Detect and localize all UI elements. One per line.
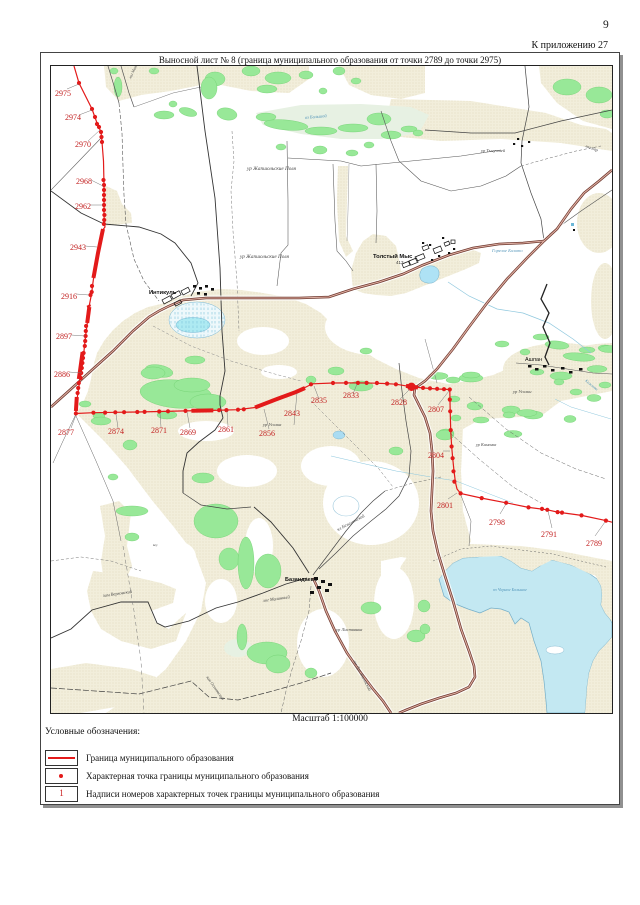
svg-text:2798: 2798 xyxy=(489,518,505,527)
svg-text:key: key xyxy=(153,543,158,547)
svg-text:ур Листвянка: ур Листвянка xyxy=(335,627,363,632)
svg-text:2843: 2843 xyxy=(284,409,300,418)
svg-text:2801: 2801 xyxy=(437,501,453,510)
svg-text:2897: 2897 xyxy=(56,332,72,341)
svg-text:2871: 2871 xyxy=(151,426,167,435)
svg-text:2974: 2974 xyxy=(65,113,81,122)
svg-text:ур Усолки: ур Усолки xyxy=(512,389,532,394)
svg-text:2861: 2861 xyxy=(218,425,234,434)
svg-text:ур Усолка: ур Усолка xyxy=(262,422,282,427)
svg-text:Толстый Мыс: Толстый Мыс xyxy=(373,253,413,260)
svg-text:Базандаево: Базандаево xyxy=(285,577,318,583)
svg-text:ур Жапшольские Поля: ур Жапшольские Поля xyxy=(239,254,289,260)
svg-text:ур Каменка: ур Каменка xyxy=(475,442,496,447)
svg-text:2804: 2804 xyxy=(428,451,444,460)
svg-text:2943: 2943 xyxy=(70,243,86,252)
svg-text:2833: 2833 xyxy=(343,391,359,400)
svg-text:оз Черное Большое: оз Черное Большое xyxy=(493,587,527,592)
svg-text:2856: 2856 xyxy=(259,429,275,438)
svg-text:2874: 2874 xyxy=(108,427,124,436)
svg-text:2886: 2886 xyxy=(54,370,70,379)
svg-text:2970: 2970 xyxy=(75,140,91,149)
svg-text:2791: 2791 xyxy=(541,530,557,539)
svg-text:2916: 2916 xyxy=(61,292,77,301)
svg-text:2877: 2877 xyxy=(58,428,74,437)
svg-text:2975: 2975 xyxy=(55,89,71,98)
svg-text:Ашпан: Ашпан xyxy=(525,357,542,363)
svg-text:2789: 2789 xyxy=(586,539,602,548)
svg-text:2869: 2869 xyxy=(180,428,196,437)
svg-text:2807: 2807 xyxy=(428,405,444,414)
svg-text:ур Тыгучтей: ур Тыгучтей xyxy=(480,148,506,153)
svg-text:Интикуль: Интикуль xyxy=(149,290,177,296)
svg-text:2968: 2968 xyxy=(76,177,92,186)
svg-text:Горелое Болото: Горелое Болото xyxy=(491,248,523,253)
svg-text:ур Жапшольские Поля: ур Жапшольские Поля xyxy=(246,166,296,172)
svg-text:2835: 2835 xyxy=(311,396,327,405)
svg-text:2828: 2828 xyxy=(391,398,407,407)
svg-text:2962: 2962 xyxy=(75,202,91,211)
svg-text:413: 413 xyxy=(396,260,404,265)
